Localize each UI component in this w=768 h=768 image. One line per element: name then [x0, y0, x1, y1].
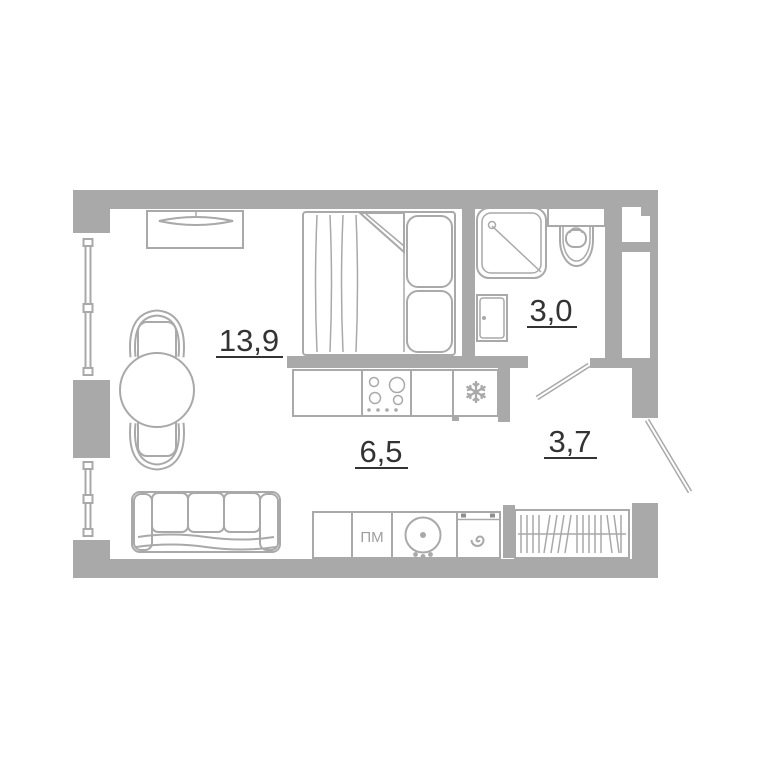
- tv-stand: [147, 211, 243, 248]
- sofa: [132, 492, 280, 552]
- washbasin-cabinet: [477, 295, 507, 341]
- dining-set: [120, 313, 194, 467]
- toilet-seat: [566, 230, 586, 247]
- duct-shaft-lower: [622, 252, 650, 358]
- wall-bottom: [73, 559, 658, 578]
- sofa-armrest-left: [134, 494, 152, 550]
- washbasin-tap: [482, 316, 486, 320]
- dishwasher-label: ПМ: [360, 529, 383, 546]
- sofa-cushion: [152, 493, 188, 532]
- wall-entry-jamb-bottom: [632, 503, 658, 578]
- knob-dot: [394, 408, 398, 412]
- bottom-cabinet-row: ПМ: [313, 512, 500, 559]
- sofa-cushion: [188, 493, 224, 532]
- pillow: [407, 291, 452, 352]
- sink-tap-dot: [421, 554, 426, 559]
- kitchen-counter: [293, 370, 498, 421]
- window-frame-cap: [84, 529, 93, 536]
- wall-kitchen-stub: [498, 368, 510, 422]
- knob-dot: [367, 408, 371, 412]
- washer-control: [461, 514, 466, 518]
- sink-drain: [420, 532, 426, 538]
- wardrobe: [515, 510, 629, 558]
- living-area-label: 13,9: [219, 323, 279, 358]
- floor-plan-page: ПМ 13,9 3,0 6,5 3,7: [0, 0, 768, 768]
- window-1: [73, 233, 110, 380]
- window-2: [73, 458, 110, 540]
- window-frame-cap: [84, 239, 93, 246]
- entrance-door-leaf-core: [647, 420, 690, 492]
- bathroom-door-leaf-core: [537, 365, 589, 398]
- toilet: [548, 208, 605, 266]
- wall-bathroom-right: [605, 190, 622, 358]
- duct-divider: [622, 242, 650, 252]
- sofa-armrest-right: [260, 494, 278, 550]
- sink-tap-dot: [413, 552, 418, 557]
- knob-dot: [376, 408, 380, 412]
- floor-plan: ПМ 13,9 3,0 6,5 3,7: [0, 0, 768, 768]
- wall-top: [73, 190, 658, 209]
- knob-dot: [385, 408, 389, 412]
- duct-notch: [641, 207, 650, 216]
- bed: [303, 212, 455, 355]
- kitchen-area-label: 6,5: [359, 434, 402, 469]
- wall-bathroom-left: [462, 190, 475, 368]
- bathroom-area-label: 3,0: [529, 293, 572, 328]
- window-frame-cap: [84, 462, 93, 469]
- round-table: [120, 353, 194, 427]
- window-frame-cap: [84, 368, 93, 375]
- hallway-area-label: 3,7: [548, 424, 591, 459]
- wall-partition-kitchen: [287, 356, 528, 368]
- wall-bottom-stub: [503, 505, 515, 558]
- washer-control: [490, 514, 495, 518]
- sink-tap-dot: [428, 552, 433, 557]
- window-frame-mullion: [84, 495, 93, 503]
- shower: [477, 208, 546, 278]
- fridge-foot: [452, 416, 459, 421]
- duct-shafts: [622, 207, 650, 358]
- washbasin-outline: [477, 295, 507, 341]
- pillow: [407, 216, 452, 287]
- wall-hall-connector: [590, 358, 658, 368]
- wall-entry-jamb-top: [632, 368, 658, 418]
- sofa-cushion: [224, 493, 260, 532]
- toilet-tank: [548, 208, 605, 226]
- tv-icon: [159, 217, 233, 225]
- window-frame-mullion: [84, 304, 93, 312]
